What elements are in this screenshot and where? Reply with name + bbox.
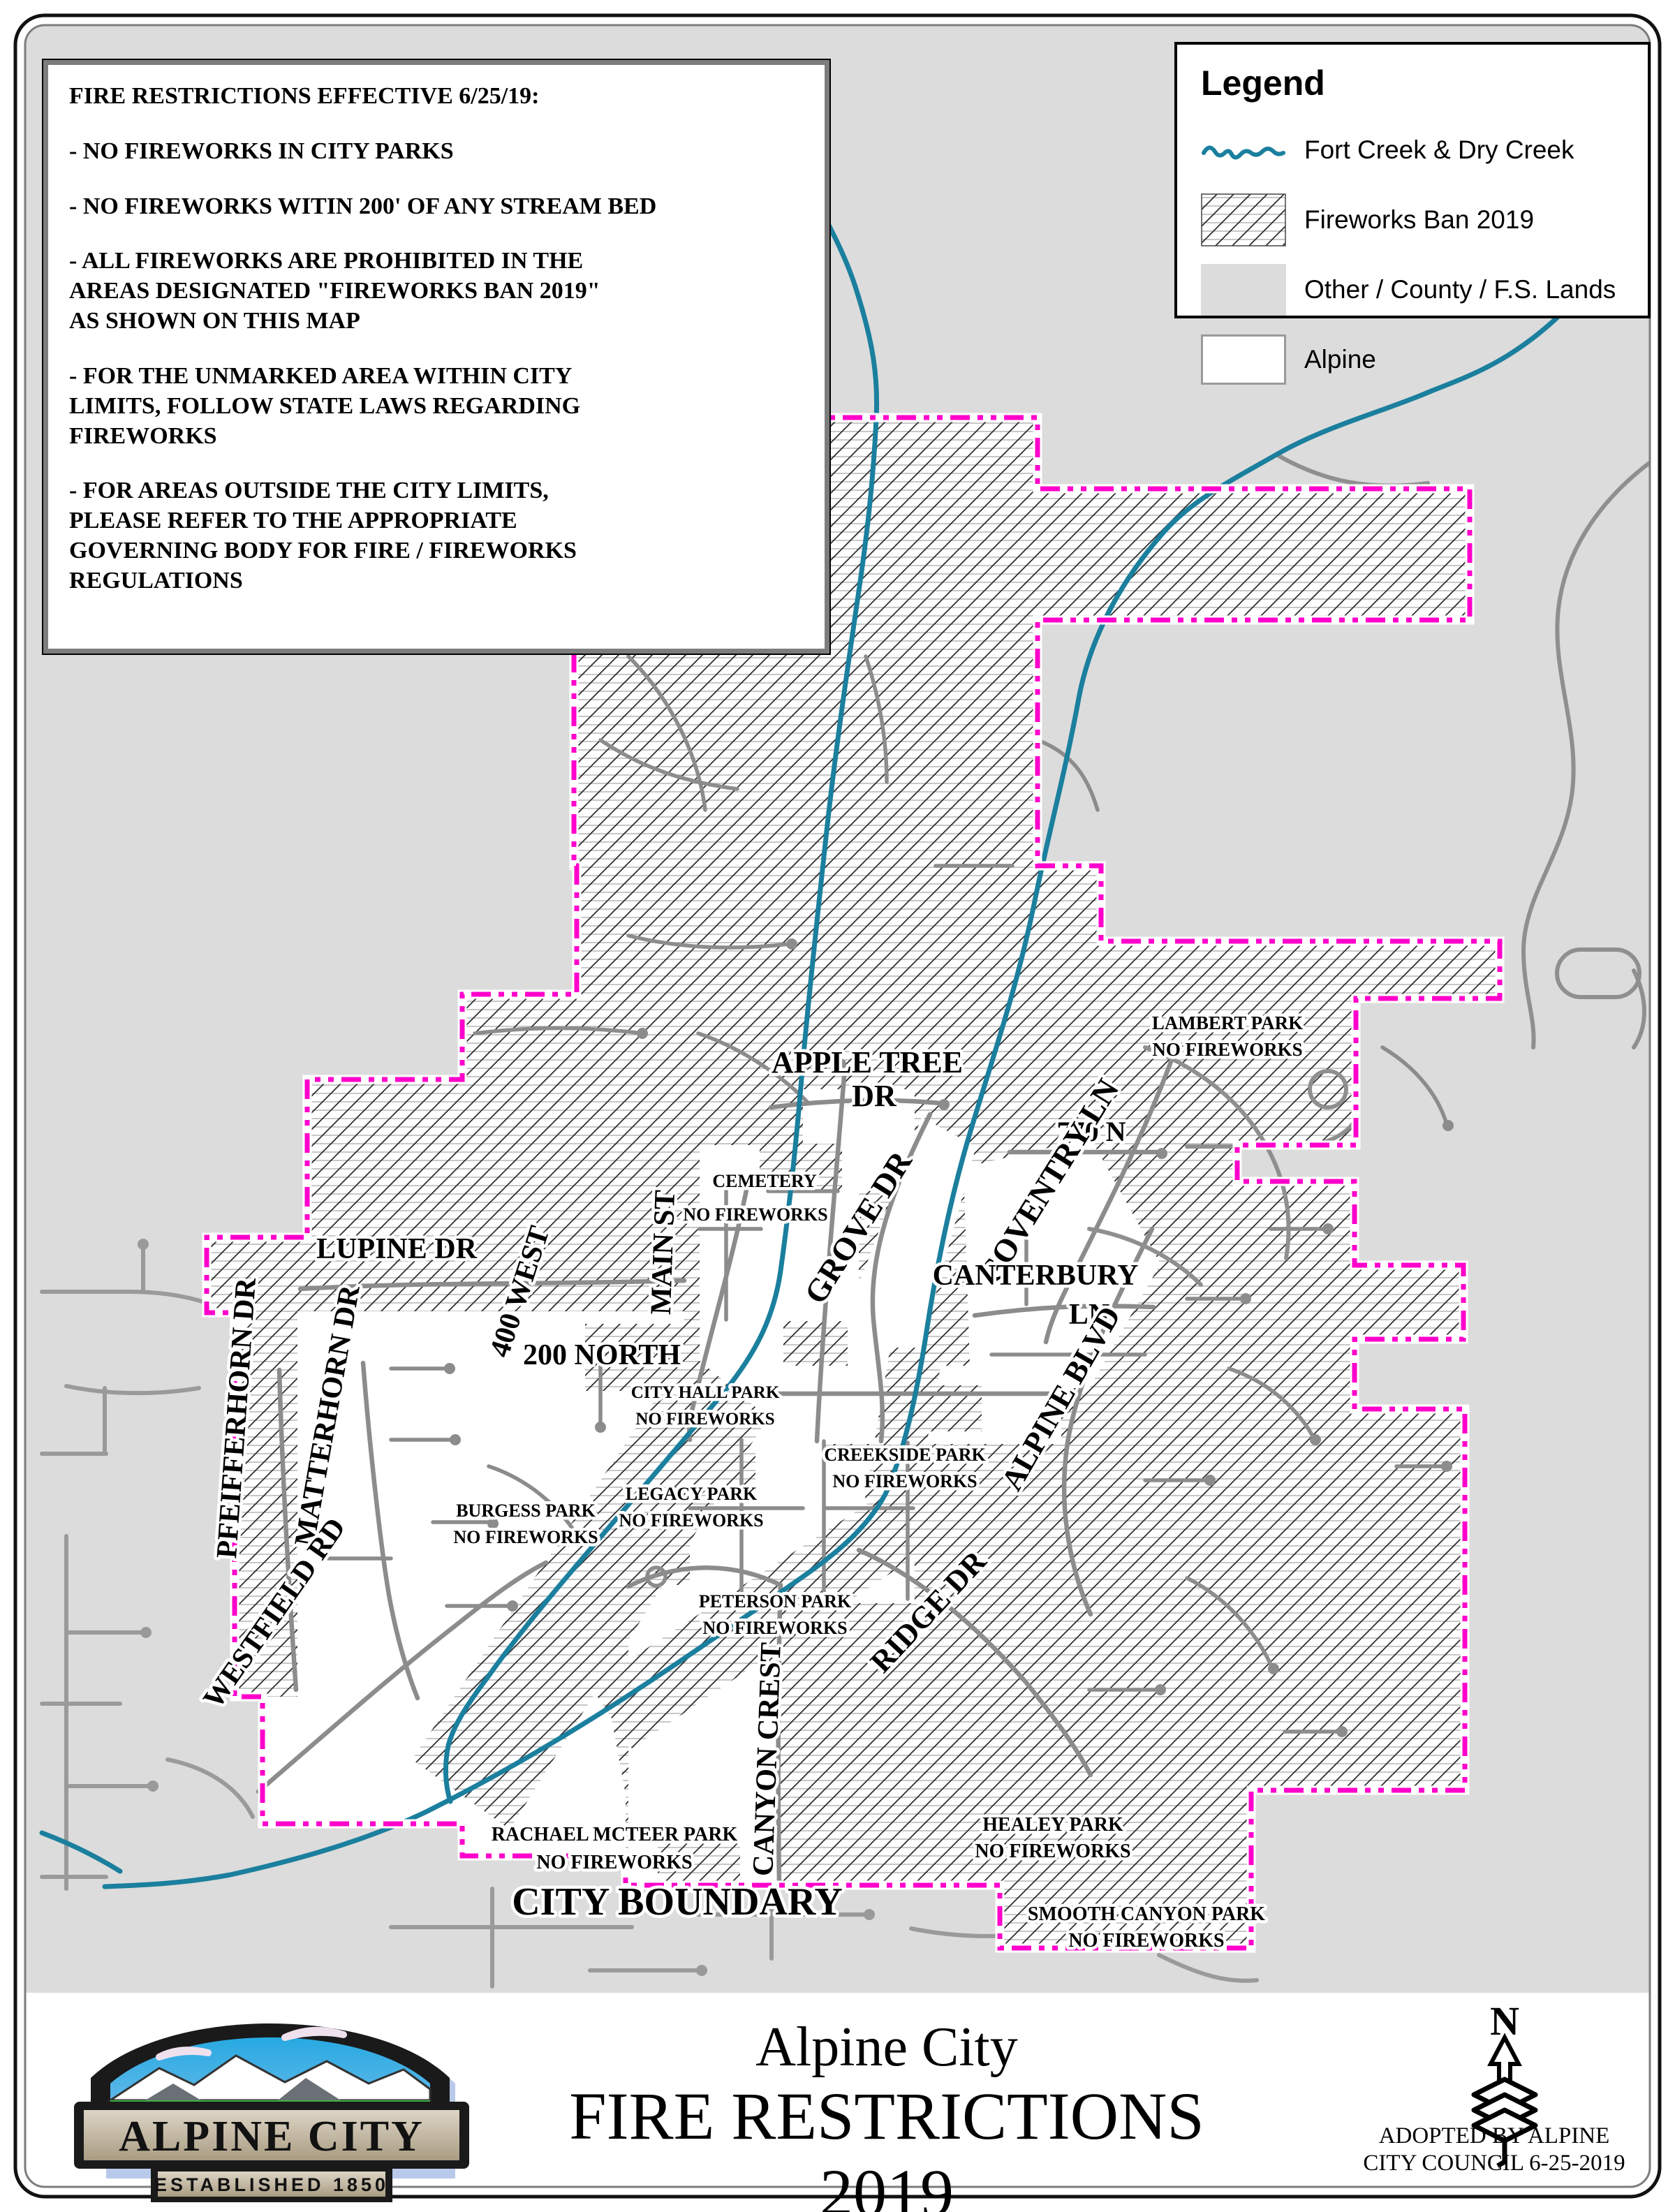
map-label-city-hall-2: NO FIREWORKS bbox=[635, 1410, 774, 1429]
fire-restrictions-notes-box: FIRE RESTRICTIONS EFFECTIVE 6/25/19: - N… bbox=[43, 60, 829, 654]
city-hall-park-patch bbox=[783, 1321, 848, 1366]
restrictions-line: - FOR THE UNMARKED AREA WITHIN CITY LIMI… bbox=[69, 362, 804, 451]
map-label-200-north: 200 NORTH bbox=[523, 1339, 681, 1371]
legend-item-label: Fireworks Ban 2019 bbox=[1304, 205, 1534, 235]
map-label-city-boundary: CITY BOUNDARY bbox=[512, 1880, 843, 1924]
map-label-lambert-2: NO FIREWORKS bbox=[1152, 1039, 1302, 1060]
map-label-canterbury-1: CANTERBURY bbox=[933, 1260, 1139, 1292]
restrictions-line: - NO FIREWORKS IN CITY PARKS bbox=[69, 137, 804, 167]
map-title-line1: Alpine City bbox=[517, 2016, 1257, 2078]
hatch-swatch bbox=[1201, 193, 1286, 246]
map-label-peterson-1: PETERSON PARK bbox=[699, 1591, 852, 1612]
restrictions-line: - NO FIREWORKS WITIN 200' OF ANY STREAM … bbox=[69, 192, 804, 222]
legend-item-creek: Fort Creek & Dry Creek bbox=[1201, 123, 1624, 177]
legend-item-county: Other / County / F.S. Lands bbox=[1201, 263, 1624, 317]
legend-item-ban: Fireworks Ban 2019 bbox=[1201, 193, 1624, 247]
restrictions-line: - FOR AREAS OUTSIDE THE CITY LIMITS, PLE… bbox=[69, 476, 804, 596]
logo-title: ALPINE CITY bbox=[119, 2113, 425, 2160]
map-label-healey-1: HEALEY PARK bbox=[982, 1814, 1123, 1836]
legend-item-label: Alpine bbox=[1304, 345, 1376, 374]
map-label-creekside-2: NO FIREWORKS bbox=[832, 1471, 977, 1491]
creek-line-swatch bbox=[1201, 138, 1286, 163]
map-label-apple-tree-2: DR bbox=[852, 1079, 897, 1113]
map-label-legacy-2: NO FIREWORKS bbox=[619, 1510, 763, 1531]
restrictions-line: FIRE RESTRICTIONS EFFECTIVE 6/25/19: bbox=[69, 82, 804, 112]
white-fill-swatch bbox=[1201, 334, 1286, 385]
legend-item-alpine: Alpine bbox=[1201, 332, 1624, 387]
gray-fill-swatch bbox=[1201, 264, 1286, 316]
map-label-rachael-1: RACHAEL MCTEER PARK bbox=[492, 1824, 738, 1845]
map-label-smooth-canyon-1: SMOOTH CANYON PARK bbox=[1028, 1903, 1265, 1925]
map-label-lambert-1: LAMBERT PARK bbox=[1152, 1012, 1303, 1033]
map-label-smooth-canyon-2: NO FIREWORKS bbox=[1068, 1930, 1224, 1952]
map-label-cemetery-2: NO FIREWORKS bbox=[683, 1204, 827, 1225]
adopted-note: ADOPTED BY ALPINE CITY COUNCIL 6-25-2019 bbox=[1327, 2123, 1662, 2177]
legend: Legend Fort Creek & Dry Creek Fireworks … bbox=[1174, 42, 1651, 318]
map-label-healey-2: NO FIREWORKS bbox=[975, 1841, 1130, 1862]
legend-item-label: Fort Creek & Dry Creek bbox=[1304, 135, 1574, 165]
map-label-burgess-1: BURGESS PARK bbox=[456, 1501, 596, 1521]
footer-title-block: Alpine City FIRE RESTRICTIONS 2019 bbox=[517, 2016, 1257, 2212]
adopted-line2: CITY COUNCIL 6-25-2019 bbox=[1327, 2150, 1662, 2177]
map-label-burgess-2: NO FIREWORKS bbox=[453, 1527, 598, 1547]
map-label-lupine-dr: LUPINE DR bbox=[316, 1233, 478, 1265]
map-label-apple-tree-1: APPLE TREE bbox=[772, 1045, 963, 1079]
logo-subtitle: ESTABLISHED 1850 bbox=[154, 2174, 389, 2195]
map-label-city-hall-1: CITY HALL PARK bbox=[631, 1383, 780, 1402]
map-label-legacy-1: LEGACY PARK bbox=[626, 1484, 758, 1504]
map-document-page: APPLE TREEDR770 NLAMBERT PARKNO FIREWORK… bbox=[0, 0, 1675, 2212]
map-label-main-st: MAIN ST bbox=[645, 1190, 681, 1315]
restrictions-line: - ALL FIREWORKS ARE PROHIBITED IN THE AR… bbox=[69, 246, 804, 336]
map-label-cemetery-1: CEMETERY bbox=[712, 1171, 817, 1191]
map-label-creekside-1: CREEKSIDE PARK bbox=[824, 1445, 986, 1465]
map-title-line2: FIRE RESTRICTIONS 2019 bbox=[517, 2078, 1257, 2212]
legend-item-label: Other / County / F.S. Lands bbox=[1304, 275, 1616, 304]
legend-title: Legend bbox=[1201, 63, 1624, 103]
adopted-line1: ADOPTED BY ALPINE bbox=[1327, 2123, 1662, 2150]
map-label-rachael-2: NO FIREWORKS bbox=[536, 1852, 692, 1873]
map-label-peterson-2: NO FIREWORKS bbox=[702, 1618, 847, 1638]
